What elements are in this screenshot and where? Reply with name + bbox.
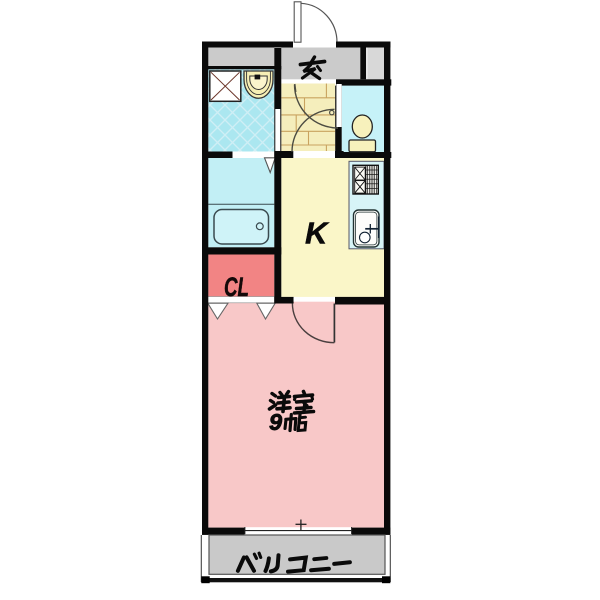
svg-text:CL: CL [224,272,249,302]
svg-text:K: K [305,216,330,251]
svg-text:9: 9 [269,409,282,435]
